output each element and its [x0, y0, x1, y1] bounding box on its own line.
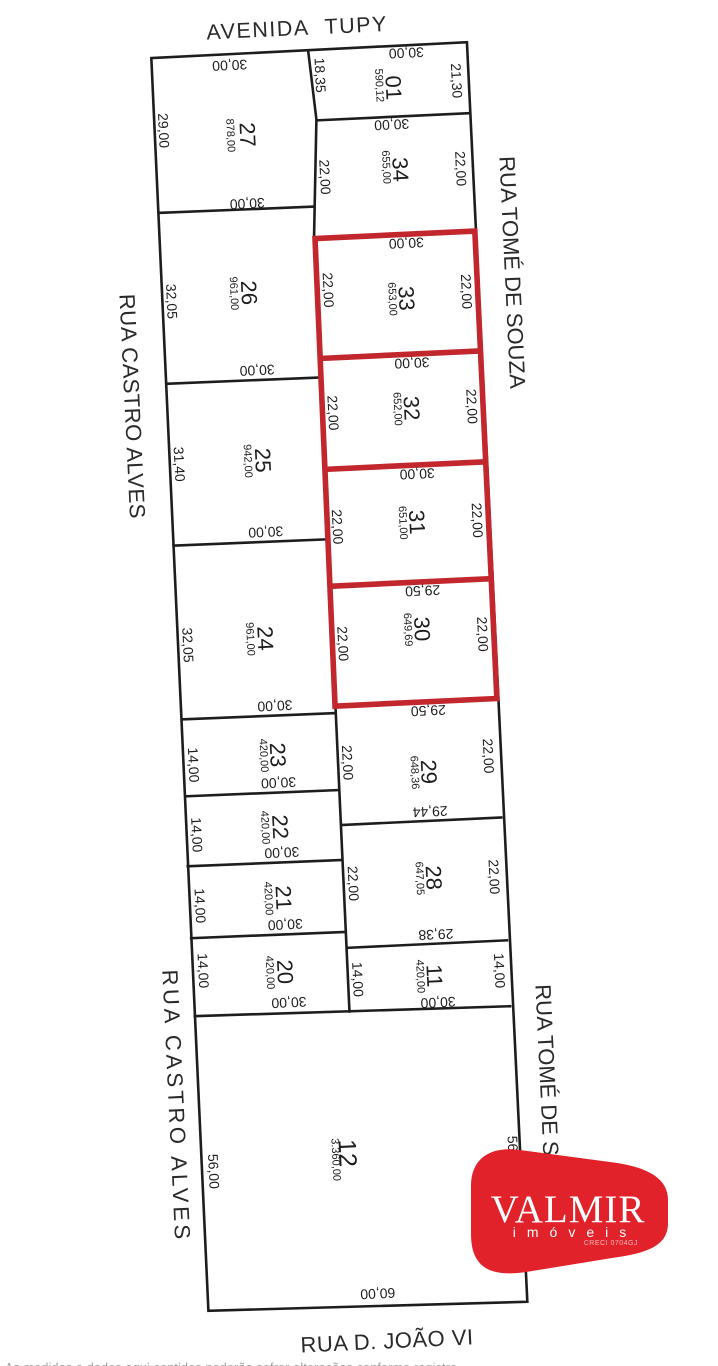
svg-text:30,00: 30,00 [267, 916, 303, 934]
svg-text:22,00: 22,00 [480, 738, 498, 774]
svg-text:653,00: 653,00 [385, 282, 399, 316]
svg-text:29,50: 29,50 [405, 582, 441, 600]
svg-text:22,00: 22,00 [316, 159, 334, 195]
svg-text:29,00: 29,00 [155, 113, 173, 149]
svg-text:30,00: 30,00 [261, 774, 297, 792]
svg-text:RUA TOMÉ DE SOUZA: RUA TOMÉ DE SOUZA [494, 156, 530, 390]
svg-text:651,00: 651,00 [396, 506, 410, 540]
svg-text:3.360,00: 3.360,00 [328, 1138, 342, 1181]
svg-text:CRECI 0704GJ: CRECI 0704GJ [584, 1240, 638, 1247]
svg-text:30,00: 30,00 [212, 57, 248, 75]
svg-text:22,00: 22,00 [474, 616, 492, 652]
svg-text:29,44: 29,44 [412, 803, 448, 821]
svg-text:30,00: 30,00 [420, 994, 456, 1012]
svg-text:RUA D. JOÃO VI: RUA D. JOÃO VI [300, 1324, 474, 1357]
svg-text:14,00: 14,00 [195, 953, 213, 989]
svg-text:14,00: 14,00 [185, 747, 203, 783]
svg-text:22,00: 22,00 [320, 272, 338, 308]
svg-text:30,00: 30,00 [248, 523, 284, 541]
svg-text:30,00: 30,00 [388, 44, 424, 62]
svg-text:30,00: 30,00 [239, 362, 275, 380]
svg-text:420,00: 420,00 [413, 959, 427, 993]
svg-text:22,00: 22,00 [334, 626, 352, 662]
svg-text:878,00: 878,00 [223, 118, 237, 152]
svg-text:22,00: 22,00 [339, 745, 357, 781]
svg-text:32,05: 32,05 [163, 284, 181, 320]
svg-text:961,00: 961,00 [243, 622, 257, 656]
svg-text:648,36: 648,36 [407, 755, 421, 789]
svg-text:942,00: 942,00 [241, 444, 255, 478]
svg-text:14,00: 14,00 [188, 817, 206, 853]
svg-text:30,00: 30,00 [394, 354, 430, 372]
svg-text:30,00: 30,00 [257, 697, 293, 715]
svg-text:32,05: 32,05 [179, 627, 197, 663]
svg-text:RUA CASTRO ALVES: RUA CASTRO ALVES [157, 969, 195, 1243]
svg-text:14,00: 14,00 [191, 888, 209, 924]
svg-text:30,00: 30,00 [388, 234, 424, 252]
svg-text:22,00: 22,00 [452, 151, 470, 187]
svg-text:29,38: 29,38 [418, 926, 454, 944]
svg-text:655,00: 655,00 [379, 150, 393, 184]
svg-text:14,00: 14,00 [491, 953, 509, 989]
svg-text:22,00: 22,00 [324, 395, 342, 431]
svg-text:RUA CASTRO ALVES: RUA CASTRO ALVES [114, 293, 150, 519]
svg-text:420,00: 420,00 [258, 811, 272, 845]
svg-text:22,00: 22,00 [329, 509, 347, 545]
svg-text:420,00: 420,00 [263, 955, 277, 989]
svg-text:649,69: 649,69 [401, 613, 415, 647]
svg-text:30,00: 30,00 [399, 465, 435, 483]
svg-text:590,12: 590,12 [372, 68, 386, 102]
svg-text:22,00: 22,00 [485, 859, 503, 895]
svg-text:420,00: 420,00 [261, 881, 275, 915]
svg-text:652,00: 652,00 [390, 392, 404, 426]
svg-text:27: 27 [234, 122, 260, 148]
svg-text:961,00: 961,00 [227, 276, 241, 310]
svg-text:22,00: 22,00 [345, 866, 363, 902]
svg-text:22,00: 22,00 [458, 274, 476, 310]
svg-text:21,30: 21,30 [448, 63, 466, 99]
svg-text:As medidas e dados aqui contid: As medidas e dados aqui contidos poderão… [5, 1361, 457, 1366]
svg-text:30,00: 30,00 [374, 116, 410, 134]
svg-text:29,50: 29,50 [410, 702, 446, 720]
svg-text:imóveis: imóveis [513, 1224, 637, 1240]
svg-text:18,35: 18,35 [312, 57, 330, 93]
svg-text:30,00: 30,00 [264, 844, 300, 862]
svg-text:420,00: 420,00 [257, 738, 271, 772]
svg-text:22,00: 22,00 [469, 502, 487, 538]
svg-text:30,00: 30,00 [271, 994, 307, 1012]
svg-text:14,00: 14,00 [349, 961, 367, 997]
svg-text:647,05: 647,05 [412, 861, 426, 895]
svg-text:56,00: 56,00 [205, 1153, 223, 1189]
svg-text:31,40: 31,40 [171, 446, 189, 482]
svg-text:22,00: 22,00 [463, 388, 481, 424]
svg-text:60,00: 60,00 [360, 1285, 396, 1303]
svg-text:AVENIDA TUPY: AVENIDA TUPY [206, 12, 389, 45]
svg-text:30,00: 30,00 [229, 195, 265, 213]
